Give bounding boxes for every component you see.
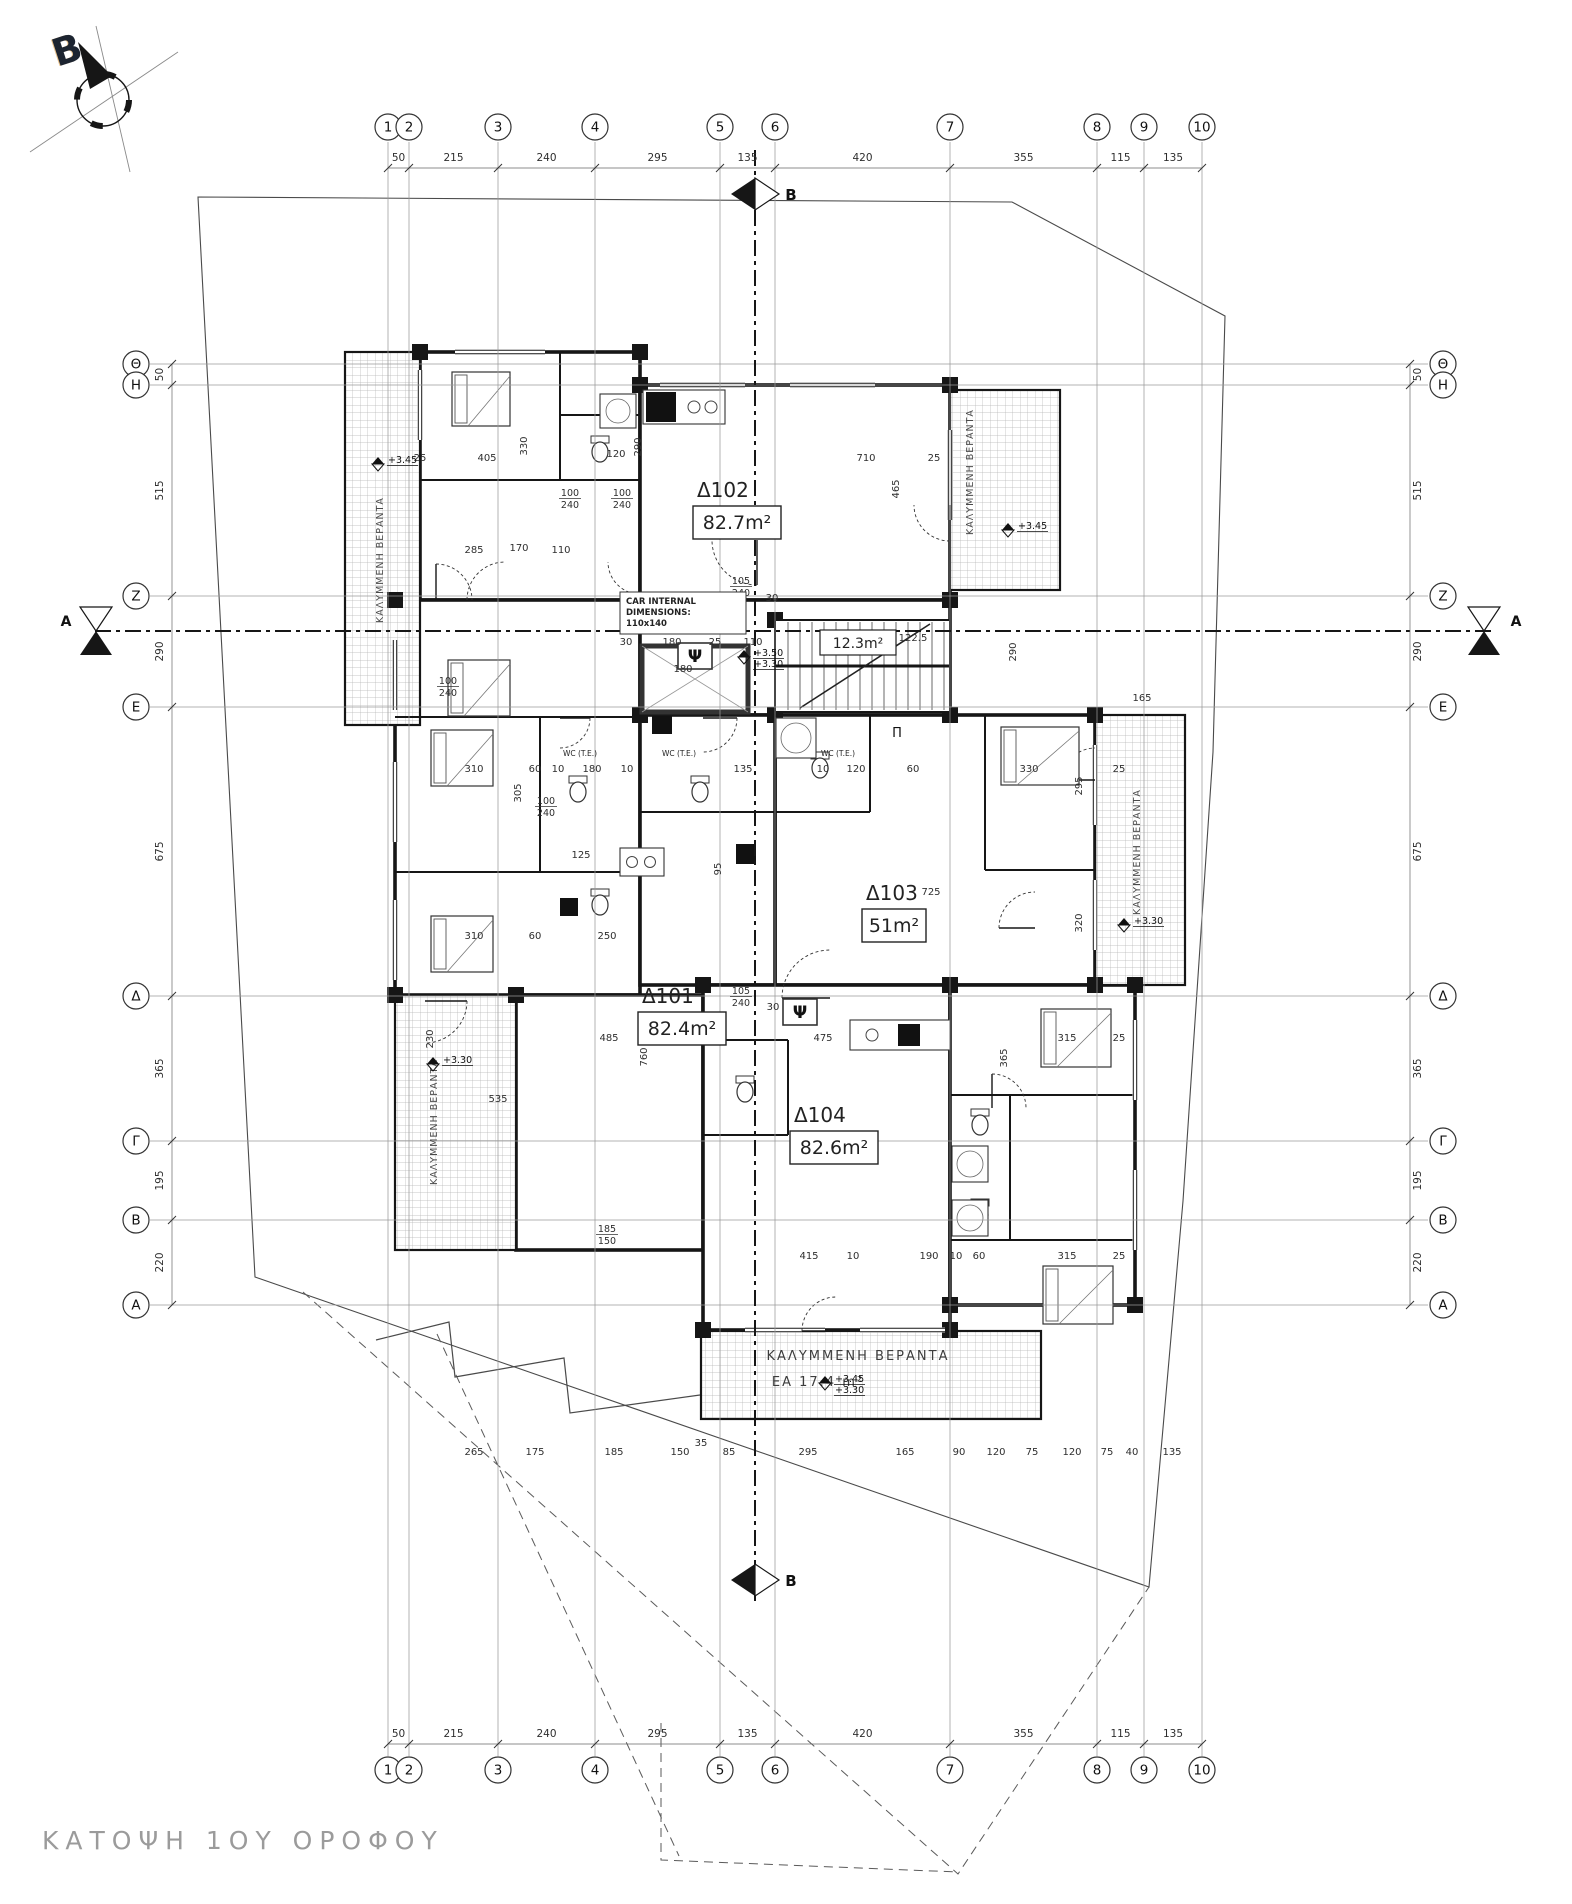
grid-bubble-label: Ε (132, 700, 141, 716)
dim-text: 10 (817, 764, 830, 775)
grid-bubble-label: 6 (771, 120, 780, 136)
floor-plan-drawing: ΨΨΠ AABB 5021524029513542035511513550215… (0, 0, 1572, 1904)
dim-text: 180 (582, 764, 601, 775)
wc-label: WC (T.E.) (821, 749, 855, 758)
level-text: +3.30 (1134, 916, 1163, 927)
grid-bubble-label: 1 (384, 1763, 393, 1779)
appliance-icon (560, 898, 578, 916)
dim-text: 355 (1013, 1728, 1033, 1740)
grid-bubble-label: 10 (1193, 120, 1210, 136)
toilet-icon (692, 782, 708, 802)
dim-text: 135 (733, 764, 752, 775)
dim-text: 50 (392, 152, 405, 164)
level-text: +3.45 (388, 455, 417, 466)
dim-fraction-top: 105 (732, 986, 750, 997)
level-text: +3.30 (754, 659, 783, 670)
dim-text: 215 (443, 152, 463, 164)
wc-label: WC (T.E.) (563, 749, 597, 758)
dim-text: 165 (1132, 693, 1151, 704)
dim-text: 760 (639, 1047, 650, 1066)
apartment-area: 82.6m² (800, 1137, 868, 1159)
dim-text: 170 (509, 543, 528, 554)
section-label-B: B (785, 186, 796, 204)
dim-text: 315 (1057, 1251, 1076, 1262)
dim-text: 295 (647, 152, 667, 164)
dim-text: 40 (1126, 1447, 1139, 1458)
apartment-name: Δ103 (866, 881, 918, 905)
dim-fraction-top: 100 (613, 488, 631, 499)
dim-text: 295 (798, 1447, 817, 1458)
dim-text: 30 (766, 593, 779, 604)
dim-text: 310 (464, 931, 483, 942)
fridge-psi-label: Ψ (793, 1003, 807, 1023)
grid-bubble-label: Β (131, 1213, 140, 1229)
dim-text: 355 (1013, 152, 1033, 164)
dim-fraction-top: 100 (561, 488, 579, 499)
dim-text: 85 (723, 1447, 736, 1458)
column (632, 344, 648, 360)
dim-text: 120 (846, 764, 865, 775)
dim-text: 150 (670, 1447, 689, 1458)
toilet-icon (737, 1082, 753, 1102)
grid-bubble-label: 3 (494, 1763, 503, 1779)
section-marker-B-icon (755, 178, 779, 210)
section-marker-B-icon (755, 1564, 779, 1596)
dim-text: 25 (1113, 1251, 1126, 1262)
dim-text: 230 (425, 1029, 436, 1048)
dim-fraction-bottom: 150 (598, 1236, 616, 1247)
section-marker-A-icon (1468, 607, 1500, 631)
dim-text: 30 (767, 1002, 780, 1013)
dim-text: 290 (1008, 642, 1019, 661)
section-marker-A-icon (80, 607, 112, 631)
dim-text: 710 (856, 453, 875, 464)
dim-text: 135 (1163, 1728, 1183, 1740)
dim-text: 120 (606, 449, 625, 460)
dim-fraction-bottom: 240 (537, 808, 555, 819)
shower-tray-icon (952, 1146, 988, 1182)
dim-text: 465 (891, 479, 902, 498)
balcony-label: ΚΑΛΥΜΜΕΝΗ ΒΕΡΑΝΤΑ (375, 497, 386, 623)
level-text: +3.45 (1018, 521, 1047, 532)
elevator-note-text: DIMENSIONS: (626, 608, 691, 618)
shower-tray-icon (776, 718, 816, 758)
toilet-icon (570, 782, 586, 802)
grid-bubble-label: Ζ (131, 589, 140, 605)
compass-circle-icon (77, 74, 129, 126)
grid-bubble-label: Ε (1439, 700, 1448, 716)
dim-fraction-bottom: 240 (732, 998, 750, 1009)
level-text: +3.50 (754, 648, 783, 659)
grid-bubble-label: 8 (1093, 120, 1102, 136)
dim-text: 35 (695, 1438, 708, 1449)
bed-icon (1043, 1266, 1113, 1324)
dim-text: 115 (1110, 1728, 1130, 1740)
dim-text: 50 (1412, 368, 1424, 381)
grid-bubble-label: Γ (1439, 1134, 1447, 1150)
grid-bubble-label: 9 (1140, 1763, 1149, 1779)
dim-text: 315 (1057, 1033, 1076, 1044)
grid-bubble-label: Η (131, 378, 141, 394)
dim-text: 135 (737, 1728, 757, 1740)
grid-bubble-label: Β (1438, 1213, 1447, 1229)
dim-text: 165 (895, 1447, 914, 1458)
dim-text: 180 (662, 637, 681, 648)
column (1087, 977, 1103, 993)
dim-text: 420 (852, 1728, 872, 1740)
dim-text: 265 (464, 1447, 483, 1458)
column (1127, 977, 1143, 993)
dim-text: 50 (154, 368, 166, 381)
grid-bubble-label: 6 (771, 1763, 780, 1779)
dim-text: 305 (513, 783, 524, 802)
dim-text: 515 (1412, 480, 1424, 500)
grid-bubble-label: 2 (405, 120, 414, 136)
dim-text: 290 (633, 437, 644, 456)
grid-bubble-label: 4 (591, 1763, 600, 1779)
dim-text: 515 (154, 480, 166, 500)
grid-bubble-label: 5 (716, 1763, 725, 1779)
section-marker-B-icon (731, 178, 755, 210)
dim-text: 240 (536, 1728, 556, 1740)
grid-bubble-label: Ζ (1438, 589, 1447, 605)
grid-bubble-label: Θ (131, 357, 142, 373)
grid-bubble-label: 10 (1193, 1763, 1210, 1779)
grid-bubble-label: Α (131, 1298, 141, 1314)
dim-text: 50 (392, 1728, 405, 1740)
dim-text: 75 (1026, 1447, 1039, 1458)
apartment-area: 51m² (869, 915, 919, 937)
apartment-area: 82.7m² (703, 512, 771, 534)
grid-bubble-label: 1 (384, 120, 393, 136)
dim-text: 10 (552, 764, 565, 775)
balcony-bottom-label: ΚΑΛΥΜΜΕΝΗ ΒΕΡΑΝΤΑ (767, 1349, 950, 1364)
dim-text: 95 (713, 863, 724, 876)
dim-text: 405 (477, 453, 496, 464)
dim-text: 135 (737, 152, 757, 164)
dim-text: 110 (743, 637, 762, 648)
dim-text: 290 (154, 641, 166, 661)
dim-text: 365 (154, 1058, 166, 1078)
dim-text: 365 (999, 1048, 1010, 1067)
level-text: +3.45 (835, 1374, 864, 1385)
dim-fraction-bottom: 240 (561, 500, 579, 511)
dim-text: 60 (973, 1251, 986, 1262)
bed-icon (431, 730, 493, 786)
shower-tray-icon (952, 1200, 988, 1236)
dim-fraction-top: 185 (598, 1224, 616, 1235)
dim-text: 175 (525, 1447, 544, 1458)
dim-text: 220 (154, 1252, 166, 1272)
dim-text: 215 (443, 1728, 463, 1740)
stove-icon (646, 392, 676, 422)
north-label: B (46, 25, 87, 76)
level-text: +3.30 (835, 1385, 864, 1396)
apartment-name: Δ101 (642, 984, 694, 1008)
dim-text: 195 (154, 1170, 166, 1190)
bed-icon (1001, 727, 1079, 785)
grid-bubble-label: Θ (1438, 357, 1449, 373)
grid-bubble-label: 7 (946, 120, 955, 136)
dim-text: 120 (1062, 1447, 1081, 1458)
dim-text: 10 (621, 764, 634, 775)
elevator-dim-text: 180 (673, 664, 692, 675)
column (387, 592, 403, 608)
toilet-icon (972, 1115, 988, 1135)
dim-text: 535 (488, 1094, 507, 1105)
dim-text: 90 (953, 1447, 966, 1458)
setback-dashed-line (661, 1723, 958, 1872)
elevator-note-text: CAR INTERNAL (626, 597, 696, 607)
grid-bubble-label: 7 (946, 1763, 955, 1779)
balcony-hatched (701, 1331, 1041, 1419)
dim-text: 485 (599, 1033, 618, 1044)
dim-text: 25 (1113, 764, 1126, 775)
section-marker-A-icon (1468, 631, 1500, 655)
section-marker-B-icon (731, 1564, 755, 1596)
dim-text: 675 (154, 841, 166, 861)
dim-text: 475 (813, 1033, 832, 1044)
apartment-area: 82.4m² (648, 1018, 716, 1040)
dim-text: 195 (1412, 1170, 1424, 1190)
grid-bubble-label: 3 (494, 120, 503, 136)
dim-text: 60 (529, 764, 542, 775)
column (695, 977, 711, 993)
appliance-icon (736, 844, 756, 864)
wc-label: WC (T.E.) (662, 749, 696, 758)
dim-text: 365 (1412, 1058, 1424, 1078)
grid-bubble-label: 8 (1093, 1763, 1102, 1779)
dim-text: 30 (620, 637, 633, 648)
bed-icon (452, 372, 510, 426)
dim-text: 290 (1412, 641, 1424, 661)
dim-text: 135 (1163, 152, 1183, 164)
section-marker-A-icon (80, 631, 112, 655)
section-label-A: A (61, 614, 72, 630)
dim-text: 675 (1412, 841, 1424, 861)
dim-text: 320 (1074, 913, 1085, 932)
dim-text: 220 (1412, 1252, 1424, 1272)
grid-bubble-label: Δ (131, 989, 141, 1005)
dim-text: 125 (571, 850, 590, 861)
column (387, 987, 403, 1003)
grid-bubble-label: 5 (716, 120, 725, 136)
dim-text: 415 (799, 1251, 818, 1262)
dim-text: 10 (847, 1251, 860, 1262)
bed-icon (431, 916, 493, 972)
dim-text: 420 (852, 152, 872, 164)
dim-text: 310 (464, 764, 483, 775)
dim-fraction-bottom: 240 (613, 500, 631, 511)
dim-text: 185 (604, 1447, 623, 1458)
balcony-label: ΚΑΛΥΜΜΕΝΗ ΒΕΡΑΝΤΑ (965, 409, 976, 535)
grid-bubble-label: 2 (405, 1763, 414, 1779)
dim-text: 725 (921, 887, 940, 898)
level-text: +3.30 (443, 1055, 472, 1066)
apartment-name: Δ104 (794, 1103, 846, 1127)
dim-fraction-top: 100 (537, 796, 555, 807)
apartment-name: Δ102 (697, 478, 749, 502)
dim-text: 10 (950, 1251, 963, 1262)
grid-bubble-label: Γ (132, 1134, 140, 1150)
dim-fraction-top: 100 (439, 676, 457, 687)
stove-icon (898, 1024, 920, 1046)
balcony-label: ΚΑΛΥΜΜΕΝΗ ΒΕΡΑΝΤΑ (1132, 789, 1143, 915)
dim-text: 295 (1074, 776, 1085, 795)
setback-dashed-line (437, 1334, 679, 1856)
grid-bubble-label: Η (1438, 378, 1448, 394)
dim-fraction-top: 105 (732, 576, 750, 587)
grid-bubble-label: Δ (1438, 989, 1448, 1005)
dim-text: 285 (464, 545, 483, 556)
bed-icon (448, 660, 510, 716)
drawing-title: ΚΑΤΟΨΗ 1ΟΥ ΟΡΟΦΟΥ (42, 1826, 444, 1855)
dim-text: 135 (1162, 1447, 1181, 1458)
toilet-icon (592, 895, 608, 915)
appliance-icon (652, 716, 672, 734)
grid-bubble-label: 4 (591, 120, 600, 136)
dim-text: 120 (986, 1447, 1005, 1458)
column (1087, 707, 1103, 723)
pi-label: Π (892, 726, 902, 741)
dim-text: 122.5 (899, 633, 928, 644)
balcony-label: ΚΑΛΥΜΜΕΝΗ ΒΕΡΑΝΤΑ (429, 1059, 440, 1185)
grid-bubble-label: Α (1438, 1298, 1448, 1314)
floor-plan-sheet: ΨΨΠ AABB 5021524029513542035511513550215… (0, 0, 1572, 1904)
dim-text: 75 (1101, 1447, 1114, 1458)
dim-text: 250 (597, 931, 616, 942)
dim-text: 330 (1019, 764, 1038, 775)
dim-text: 25 (709, 637, 722, 648)
section-label-A: A (1511, 614, 1522, 630)
dim-fraction-bottom: 240 (439, 688, 457, 699)
north-arrow: B (30, 25, 178, 172)
dim-text: 25 (928, 453, 941, 464)
elevator-note-text: 110x140 (626, 619, 667, 629)
dim-text: 25 (1113, 1033, 1126, 1044)
dim-text: 295 (647, 1728, 667, 1740)
dim-text: 330 (519, 436, 530, 455)
column (695, 1322, 711, 1338)
stair-area-label: 12.3m² (833, 636, 883, 652)
dim-text: 110 (551, 545, 570, 556)
grid-bubble-label: 9 (1140, 120, 1149, 136)
section-label-B: B (785, 1572, 796, 1590)
dim-text: 240 (536, 152, 556, 164)
column (508, 987, 524, 1003)
column (412, 344, 428, 360)
dim-text: 60 (907, 764, 920, 775)
dim-text: 115 (1110, 152, 1130, 164)
dim-text: 60 (529, 931, 542, 942)
dim-text: 190 (919, 1251, 938, 1262)
